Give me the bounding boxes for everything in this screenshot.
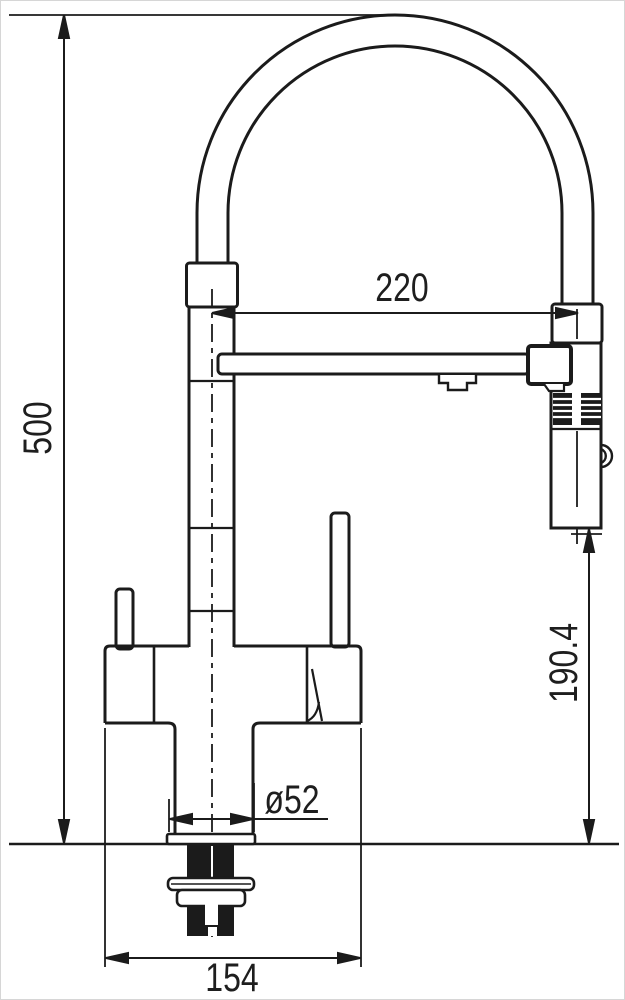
dim-220-arrow-left <box>212 308 234 318</box>
mounting-hardware <box>168 844 254 936</box>
dim-154-arrow-right <box>338 953 360 963</box>
faucet-body <box>105 646 361 834</box>
dim-label-spout-reach: 220 <box>375 268 428 308</box>
mixer-lever <box>331 513 349 647</box>
faucet-line-drawing <box>1 1 625 1000</box>
dim-500-graphics <box>9 15 398 843</box>
base-flange <box>167 834 255 844</box>
connector-tab <box>544 384 564 391</box>
stud-slot <box>205 899 218 925</box>
handle-pivot-lines <box>307 669 322 721</box>
stud-notch <box>208 927 217 936</box>
arm-clip-tab <box>439 375 476 390</box>
spray-side-button <box>601 445 612 467</box>
dim-dia52-arrow-right <box>231 814 253 824</box>
dim-154-arrow-left <box>106 953 128 963</box>
hose-arch <box>197 15 593 305</box>
dim-190-arrow-up <box>584 529 594 552</box>
dim-500-arrow-up <box>59 15 69 38</box>
filter-lever <box>116 589 133 649</box>
dim-label-outlet-height: 190.4 <box>544 623 584 703</box>
dim-label-overall-height: 500 <box>18 401 58 454</box>
swivel-arm <box>218 354 529 390</box>
dim-label-base-width: 154 <box>205 958 258 998</box>
spray-head <box>528 304 612 544</box>
body-bottom-left-step <box>105 723 175 834</box>
dim-label-base-diameter: ø52 <box>264 780 319 820</box>
technical-drawing-canvas: 500 220 190.4 ø52 154 <box>0 0 625 1000</box>
mounting-shank <box>187 844 234 879</box>
dim-500-arrow-down <box>59 820 69 843</box>
dim-190-arrow-down <box>584 820 594 843</box>
dim-dia52-arrow-left <box>170 814 192 824</box>
arm-connector-block <box>528 346 571 384</box>
hose-outer-curve <box>197 15 593 305</box>
body-top-left <box>105 646 189 723</box>
swivel-arm-bar <box>218 354 529 374</box>
body-top-right <box>234 646 361 723</box>
